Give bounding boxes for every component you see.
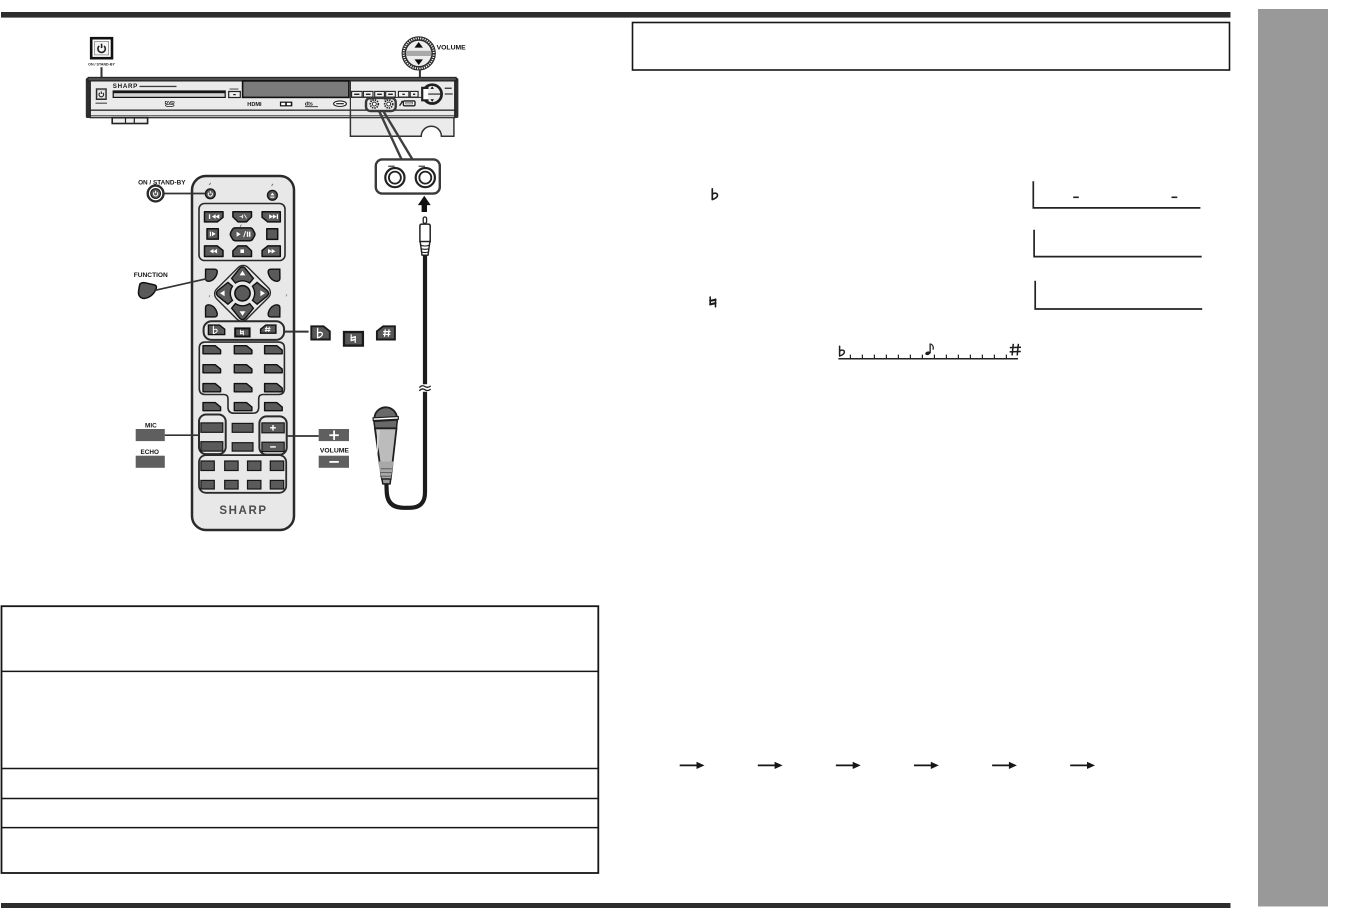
svg-text:HDMI: HDMI — [247, 102, 262, 108]
svg-text:MIC: MIC — [145, 423, 157, 430]
svg-text:VOLUME: VOLUME — [437, 45, 467, 52]
svg-text:DVD: DVD — [165, 100, 176, 106]
svg-text:ECHO: ECHO — [140, 449, 158, 456]
svg-text:VOLUME: VOLUME — [320, 448, 350, 455]
svg-text:ON / STAND-BY: ON / STAND-BY — [88, 62, 115, 66]
svg-text:FUNCTION: FUNCTION — [134, 272, 168, 279]
svg-text:SHARP: SHARP — [219, 505, 267, 517]
svg-text:ON / STAND-BY: ON / STAND-BY — [138, 180, 186, 187]
svg-text:SHARP: SHARP — [113, 83, 138, 90]
